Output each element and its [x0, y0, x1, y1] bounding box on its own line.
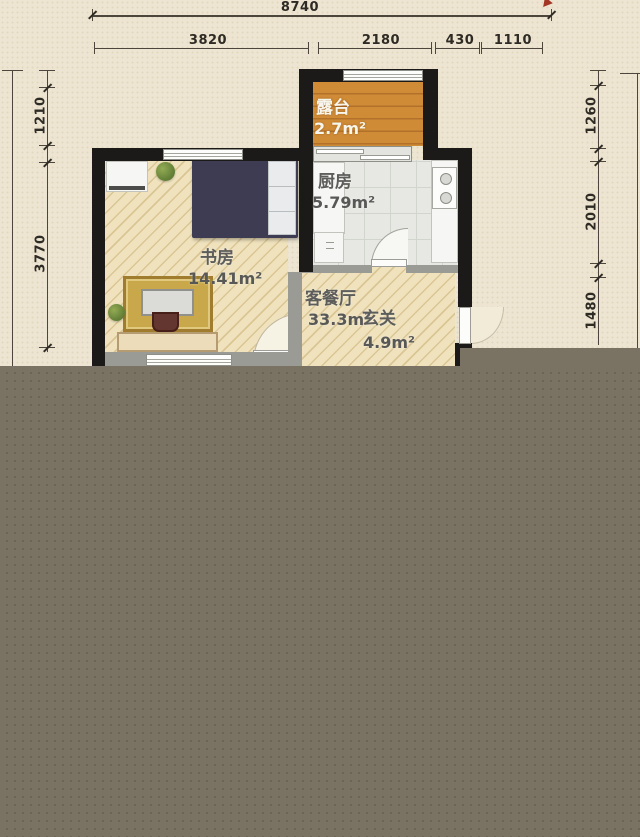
- dim-left-seg-1: 1210: [34, 86, 49, 146]
- dim-tick: [2, 70, 23, 71]
- stove: [432, 167, 457, 209]
- dim-right-seg-3: 1480: [585, 281, 600, 341]
- study-top-window: [163, 149, 243, 160]
- entry-area: 4.9m²: [363, 333, 415, 352]
- dim-line: [435, 48, 479, 49]
- wall-terrace-left: [299, 69, 313, 160]
- dim-tick: [620, 73, 640, 74]
- floor-plan-canvas: 8740 3820 2180 430 1110 1210 3770 1260 2…: [0, 0, 640, 837]
- study-label: 书房: [200, 243, 234, 268]
- study-cabinet: [106, 161, 148, 192]
- terrace-label: 露台: [316, 93, 350, 118]
- entry-door-leaf: [459, 307, 471, 344]
- dim-line: [318, 48, 431, 49]
- wall-study-kitchen: [299, 160, 313, 272]
- kitchen-terrace-sliding-window: [313, 146, 412, 162]
- dim-top-total: 8740: [265, 0, 335, 15]
- wall-kitchen-right: [458, 153, 472, 307]
- censor-overlay-main: [0, 366, 640, 837]
- dim-right-seg-2: 2010: [585, 182, 600, 242]
- burner: [440, 192, 452, 204]
- living-dining-label: 客餐厅: [305, 284, 356, 309]
- plant: [156, 162, 175, 181]
- dim-line-right-outer: [637, 73, 638, 367]
- dim-line-top-total: [92, 15, 552, 17]
- dim-right-seg-1: 1260: [585, 86, 600, 146]
- entry-door-swing: [471, 307, 504, 344]
- dim-top-seg-4: 1110: [482, 33, 544, 48]
- entry-label: 玄关: [362, 304, 396, 329]
- burner: [440, 173, 452, 185]
- dim-tick: [308, 42, 309, 54]
- kitchen-area: 5.79m²: [312, 193, 375, 212]
- dim-tick: [318, 42, 319, 54]
- dim-top-seg-1: 3820: [173, 33, 243, 48]
- dim-line-left-outer: [12, 70, 13, 367]
- wall-terrace-right: [423, 69, 438, 160]
- study-bottom-window: [146, 354, 232, 366]
- dim-top-seg-2: 2180: [346, 33, 416, 48]
- dim-top-seg-3: 430: [433, 33, 487, 48]
- dim-line: [94, 48, 308, 49]
- wall-kitchen-bottom-right: [406, 265, 458, 273]
- dim-tick: [94, 42, 95, 54]
- dim-line: [481, 48, 542, 49]
- bed: [192, 158, 298, 238]
- kitchen-label: 厨房: [318, 167, 352, 192]
- dim-left-seg-2: 3770: [34, 224, 49, 284]
- bed-pillows: [268, 161, 296, 235]
- dim-tick: [590, 70, 606, 71]
- plant: [108, 304, 125, 321]
- dim-tick: [39, 70, 55, 71]
- wall-study-left: [92, 148, 105, 368]
- study-sideboard: [117, 332, 218, 352]
- cabinet-detail: [109, 186, 145, 190]
- study-chair: [152, 312, 179, 332]
- kitchen-fridge: [314, 232, 344, 263]
- terrace-area: 2.7m²: [314, 119, 366, 138]
- terrace-window: [343, 70, 423, 81]
- study-area: 14.41m²: [188, 269, 262, 288]
- wall-study-living: [288, 272, 302, 367]
- kitchen-door-leaf: [371, 259, 407, 267]
- dim-tick: [431, 42, 432, 54]
